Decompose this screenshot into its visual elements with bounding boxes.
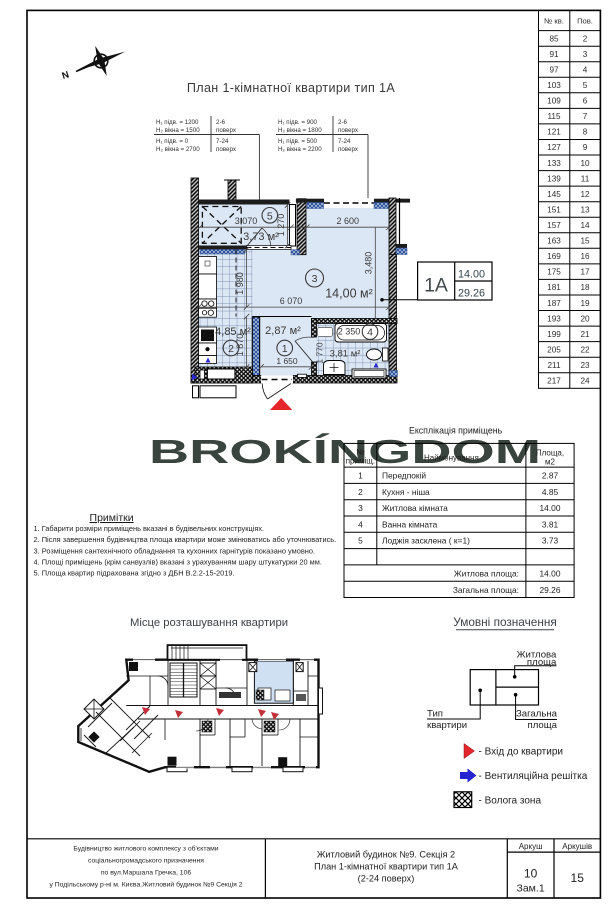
svg-text:Ванна кімната: Ванна кімната (382, 519, 438, 529)
svg-text:3. Розміщення сантехнічного об: 3. Розміщення сантехнічного обладнання т… (34, 546, 316, 555)
svg-text:181: 181 (547, 283, 561, 292)
svg-text:5. Площа квартир підрахована з: 5. Площа квартир підрахована згідно з ДБ… (34, 569, 235, 578)
svg-text:N: N (61, 69, 71, 82)
svg-text:H₁ підв. = 0: H₁ підв. = 0 (156, 138, 189, 145)
svg-text:Примітки: Примітки (90, 512, 134, 524)
svg-text:109: 109 (547, 97, 561, 106)
svg-text:2: 2 (228, 343, 234, 355)
svg-text:151: 151 (547, 205, 561, 214)
svg-text:Місце розташування квартири: Місце розташування квартири (130, 617, 288, 629)
svg-text:7: 7 (583, 112, 588, 121)
svg-text:Зам.1: Зам.1 (517, 883, 545, 895)
svg-text:15: 15 (571, 871, 585, 885)
svg-text:3,81 м²: 3,81 м² (330, 349, 361, 360)
svg-text:- Волога зона: - Волога зона (479, 796, 542, 807)
svg-text:площа: площа (527, 657, 557, 668)
svg-text:103: 103 (547, 81, 561, 90)
svg-text:Пов.: Пов. (577, 17, 593, 26)
svg-text:м2: м2 (545, 458, 556, 467)
svg-text:Загальна площа:: Загальна площа: (453, 585, 519, 595)
svg-text:19: 19 (580, 299, 590, 308)
svg-text:187: 187 (547, 299, 561, 308)
svg-text:11: 11 (581, 174, 590, 183)
svg-text:4.85: 4.85 (542, 487, 559, 497)
svg-text:3: 3 (312, 273, 318, 285)
svg-text:175: 175 (547, 268, 561, 277)
svg-text:Площа,: Площа, (536, 449, 564, 458)
svg-text:169: 169 (547, 252, 561, 261)
svg-text:139: 139 (547, 174, 561, 183)
svg-text:2,87 м²: 2,87 м² (265, 325, 301, 337)
svg-text:План 1-кімнатної квартири тип: План 1-кімнатної квартири тип 1А (314, 862, 459, 872)
svg-text:85: 85 (549, 34, 559, 43)
svg-text:2-6: 2-6 (216, 119, 226, 126)
svg-text:9: 9 (583, 143, 588, 152)
svg-text:Кухня - ніша: Кухня - ніша (382, 487, 430, 497)
svg-text:1 980: 1 980 (235, 272, 245, 295)
svg-text:3.73: 3.73 (542, 536, 559, 546)
svg-text:2.87: 2.87 (542, 471, 559, 481)
svg-text:План 1-кімнатної квартири тип: План 1-кімнатної квартири тип 1А (187, 81, 396, 95)
svg-text:площа: площа (528, 720, 558, 731)
svg-text:23: 23 (580, 361, 590, 370)
svg-text:4. Площі приміщень (крім санву: 4. Площі приміщень (крім санвузлів) вказ… (34, 558, 322, 567)
svg-text:29.26: 29.26 (458, 287, 485, 299)
svg-text:7-24: 7-24 (338, 138, 351, 145)
svg-text:1А: 1А (424, 275, 448, 297)
svg-text:2-6: 2-6 (338, 119, 348, 126)
svg-text:10: 10 (524, 867, 538, 881)
svg-text:H₂ вікна = 1800: H₂ вікна = 1800 (278, 127, 322, 134)
svg-text:Житлова кімната: Житлова кімната (382, 503, 448, 513)
svg-text:14.00: 14.00 (458, 268, 485, 280)
svg-text:Житловий будинок №9. Секція 2: Житловий будинок №9. Секція 2 (317, 850, 455, 860)
svg-text:H₁ підв. = 500: H₁ підв. = 500 (278, 138, 318, 145)
svg-text:Лоджія засклена ( к=1): Лоджія засклена ( к=1) (382, 536, 470, 546)
svg-text:поверх: поверх (216, 146, 237, 153)
svg-text:21: 21 (580, 330, 590, 339)
svg-text:8: 8 (583, 128, 588, 137)
svg-text:3,480: 3,480 (364, 252, 374, 275)
svg-text:поверх: поверх (338, 127, 359, 134)
svg-text:- Вентиляційна решітка: - Вентиляційна решітка (479, 771, 588, 782)
svg-text:14.00: 14.00 (540, 503, 561, 513)
svg-text:5: 5 (358, 536, 363, 546)
svg-text:18: 18 (580, 283, 590, 292)
svg-text:1: 1 (358, 471, 363, 481)
svg-text:91: 91 (549, 50, 559, 59)
svg-text:5: 5 (267, 210, 273, 222)
svg-text:Передпокій: Передпокій (382, 471, 426, 481)
svg-text:соціальногромадського призначе: соціальногромадського призначення (88, 857, 204, 865)
svg-text:2: 2 (358, 487, 363, 497)
svg-text:Будівництво житлового комплекс: Будівництво житлового комплексу з об'єкт… (73, 845, 218, 853)
svg-text:14: 14 (580, 221, 590, 230)
svg-text:217: 217 (547, 377, 561, 386)
svg-text:3: 3 (583, 50, 588, 59)
svg-text:Тип: Тип (427, 709, 443, 720)
svg-text:(2-24 поверх): (2-24 поверх) (358, 874, 415, 884)
svg-text:H₁ підв. = 900: H₁ підв. = 900 (278, 119, 318, 126)
svg-text:199: 199 (547, 330, 561, 339)
svg-text:Аркушів: Аркушів (562, 842, 592, 851)
svg-text:211: 211 (547, 361, 560, 370)
svg-text:17: 17 (580, 268, 590, 277)
svg-text:№: № (356, 448, 365, 457)
svg-text:Найменування: Найменування (424, 454, 479, 463)
svg-text:157: 157 (547, 221, 561, 230)
svg-text:22: 22 (580, 345, 590, 354)
svg-text:Загальна: Загальна (516, 709, 558, 720)
svg-text:Житлова площа:: Житлова площа: (454, 569, 519, 579)
svg-text:6: 6 (583, 97, 588, 106)
svg-text:2. Після завершення будівництв: 2. Після завершення будівництва площа кв… (34, 535, 337, 544)
svg-text:97: 97 (549, 66, 559, 75)
svg-text:4: 4 (358, 519, 363, 529)
svg-text:7-24: 7-24 (216, 138, 229, 145)
svg-text:H₁ підв. = 1200: H₁ підв. = 1200 (156, 119, 199, 126)
svg-text:2 600: 2 600 (337, 216, 360, 226)
svg-text:29.26: 29.26 (540, 585, 561, 595)
svg-text:3,73 м²: 3,73 м² (243, 231, 279, 243)
svg-text:- Вхід до квартири: - Вхід до квартири (479, 747, 563, 758)
svg-text:2 350: 2 350 (338, 327, 361, 337)
svg-text:163: 163 (547, 237, 561, 246)
svg-text:12: 12 (580, 190, 590, 199)
svg-text:Експлікація приміщень: Експлікація приміщень (409, 426, 503, 436)
svg-text:16: 16 (580, 252, 590, 261)
svg-text:Аркуш: Аркуш (519, 842, 543, 851)
svg-text:3: 3 (358, 503, 363, 513)
svg-text:145: 145 (547, 190, 561, 199)
svg-text:133: 133 (547, 159, 561, 168)
svg-text:14,00 м²: 14,00 м² (325, 287, 373, 301)
svg-text:у Подільському р-ні м. Києва.Ж: у Подільському р-ні м. Києва.Житловий бу… (49, 881, 242, 889)
svg-text:24: 24 (580, 377, 590, 386)
svg-text:H₂ вікна = 2200: H₂ вікна = 2200 (278, 146, 322, 153)
svg-text:2: 2 (583, 34, 588, 43)
svg-text:1. Габарити розміри приміщень: 1. Габарити розміри приміщень вказані в … (34, 524, 265, 533)
svg-text:127: 127 (547, 143, 561, 152)
svg-text:H₂ вікна = 1500: H₂ вікна = 1500 (156, 127, 200, 134)
svg-text:4: 4 (583, 66, 588, 75)
svg-text:14.00: 14.00 (540, 569, 561, 579)
svg-text:приміщ.: приміщ. (346, 457, 375, 466)
svg-text:H₂ вікна = 2700: H₂ вікна = 2700 (156, 146, 200, 153)
svg-text:1: 1 (282, 343, 288, 355)
svg-text:193: 193 (547, 314, 561, 323)
svg-text:4,85 м²: 4,85 м² (215, 326, 251, 338)
svg-text:10: 10 (580, 159, 590, 168)
svg-text:квартири: квартири (427, 720, 467, 731)
svg-text:121: 121 (547, 128, 561, 137)
svg-text:Умовні позначення: Умовні позначення (453, 615, 556, 629)
svg-text:1 650: 1 650 (276, 356, 298, 366)
svg-text:1 770: 1 770 (315, 342, 325, 364)
svg-text:4: 4 (367, 327, 373, 339)
svg-text:6 070: 6 070 (280, 296, 303, 306)
svg-text:5: 5 (583, 81, 588, 90)
svg-text:15: 15 (580, 237, 590, 246)
svg-text:205: 205 (547, 345, 561, 354)
svg-text:поверх: поверх (338, 146, 359, 153)
svg-text:13: 13 (580, 205, 590, 214)
svg-text:115: 115 (547, 112, 560, 121)
svg-text:№ кв.: № кв. (544, 17, 564, 26)
svg-text:по вул.Маршала Гречка, 106: по вул.Маршала Гречка, 106 (101, 870, 191, 877)
svg-text:3.81: 3.81 (542, 519, 559, 529)
svg-text:20: 20 (580, 314, 590, 323)
svg-text:поверх: поверх (216, 127, 237, 134)
svg-text:3,070: 3,070 (235, 216, 258, 226)
